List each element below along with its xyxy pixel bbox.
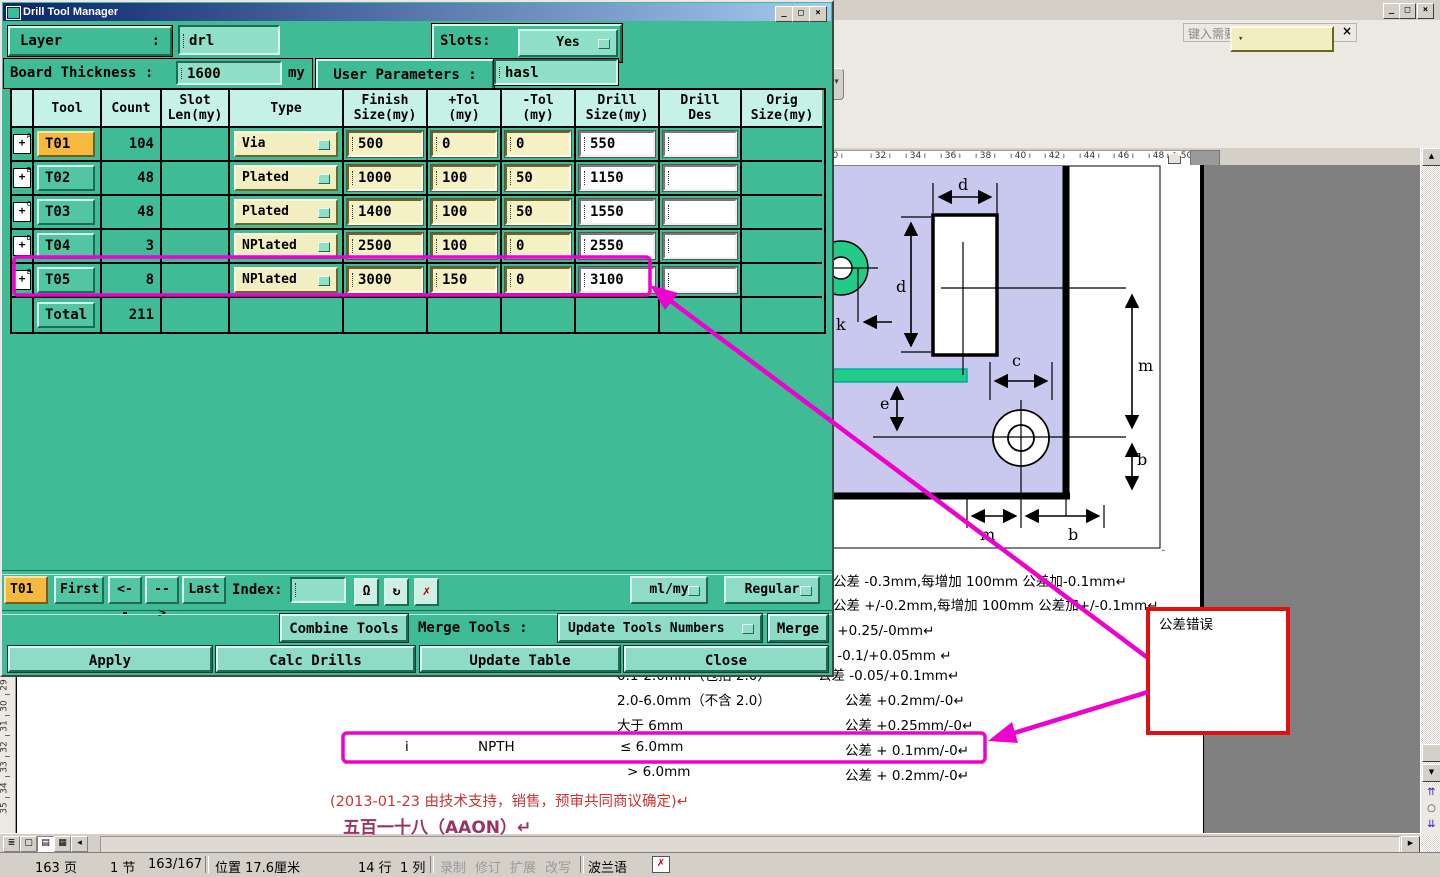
minus-tol-input[interactable]: 0: [505, 131, 571, 157]
first-button[interactable]: First: [54, 576, 104, 604]
status-column: 1 列: [400, 857, 425, 876]
plus-tol-input[interactable]: 0: [431, 131, 497, 157]
type-dropdown[interactable]: NPlated: [234, 267, 338, 293]
range-cell: > 6.0mm: [627, 764, 690, 780]
slots-dropdown[interactable]: Yes: [518, 29, 618, 57]
tolerance-cell: 公差 +0.2mm/-0↵: [845, 689, 965, 709]
merge-mode-dropdown[interactable]: Update Tools Numbers: [558, 614, 762, 642]
count-cell: 104: [102, 128, 162, 162]
add-page-icon[interactable]: +B: [13, 168, 31, 188]
thickness-label: Board Thickness :: [10, 65, 153, 81]
vruler-number: 31: [0, 720, 10, 731]
count-cell: 48: [102, 162, 162, 196]
vruler-number: 30: [0, 700, 10, 711]
web-layout-button[interactable]: ▢: [20, 836, 37, 852]
units-dropdown[interactable]: ml/my: [630, 576, 708, 604]
tolerance-cell: 公差 -0.05/+0.1mm↵: [818, 664, 959, 684]
finish-size-input[interactable]: 500: [347, 131, 423, 157]
total-label: Total: [37, 302, 95, 328]
vertical-ruler[interactable]: 29 30 31 32 33 34 35: [0, 672, 16, 833]
close-button[interactable]: Close: [624, 646, 828, 672]
prev-button[interactable]: <--: [108, 576, 142, 604]
refresh-icon-button[interactable]: ↻: [384, 578, 409, 606]
finish-size-input[interactable]: 2500: [347, 233, 423, 259]
drill-size-input[interactable]: 3100: [579, 267, 655, 293]
index-label: Index:: [232, 582, 283, 598]
units-value: ml/my: [649, 582, 688, 597]
npth-cell: NPTH: [478, 739, 515, 755]
scroll-left-button[interactable]: ◂: [71, 836, 88, 852]
vruler-number: 29: [0, 679, 10, 690]
chevron-down-icon[interactable]: ▾: [1230, 26, 1334, 52]
add-page-icon[interactable]: +D: [13, 236, 31, 256]
bulb-icon-button[interactable]: Ω: [354, 578, 379, 606]
drill-des-input[interactable]: [663, 233, 737, 259]
vertical-scrollbar[interactable]: ▲ ▼ ⇈ ○ ⇊: [1420, 147, 1440, 852]
vruler-number: 34: [0, 782, 10, 793]
drill-size-input[interactable]: 1150: [579, 165, 655, 191]
ruler-number: 42: [1044, 151, 1065, 161]
word-title-bar: _ □ ×: [830, 0, 1440, 21]
drill-size-input[interactable]: 2550: [579, 233, 655, 259]
user-params-label-box: User Parameters :: [316, 59, 494, 90]
drill-size-input[interactable]: 1550: [579, 199, 655, 225]
tolerance-cell: 公差 + 0.2mm/-0↵: [845, 764, 969, 784]
orig-size-cell: [742, 264, 822, 298]
dim-label-b-bottom: b: [1068, 525, 1078, 544]
dim-label-d-left: d: [896, 277, 906, 296]
dim-label-k: k: [836, 315, 846, 334]
table-header-row: Tool Count SlotLen(my) Type FinishSize(m…: [12, 90, 824, 128]
drill-des-input[interactable]: [663, 199, 737, 225]
layer-colon: :: [152, 33, 160, 49]
scrollbar-thumb[interactable]: [1422, 744, 1440, 762]
dialog-maximize-button[interactable]: □: [792, 6, 810, 22]
type-dropdown[interactable]: NPlated: [234, 233, 338, 259]
tool-button[interactable]: T04: [37, 233, 95, 259]
current-tool-chip: T01: [4, 576, 48, 604]
table-row: +B T02 48 Plated 1000 100 50 1150: [12, 162, 824, 196]
ruler-number: 30: [833, 151, 843, 161]
calc-drills-button[interactable]: Calc Drills: [216, 646, 415, 672]
tool-table: Tool Count SlotLen(my) Type FinishSize(m…: [10, 88, 826, 334]
type-dropdown[interactable]: Plated: [234, 165, 338, 191]
finish-size-input[interactable]: 1400: [347, 199, 423, 225]
count-cell: 8: [102, 264, 162, 298]
slot-len-cell: [162, 230, 230, 264]
index-input[interactable]: [290, 577, 346, 603]
layer-value: drl: [189, 33, 214, 49]
drill-des-input[interactable]: [663, 131, 737, 157]
count-cell: 48: [102, 196, 162, 230]
type-dropdown[interactable]: Plated: [234, 199, 338, 225]
tolerance-cell: 公差 +0.25mm/-0↵: [845, 714, 973, 734]
dropdown-indicator-icon: [318, 208, 330, 218]
ruler-number: 44: [1079, 151, 1100, 161]
dropdown-indicator-icon: [318, 174, 330, 184]
slots-label: Slots:: [440, 33, 491, 49]
slot-len-cell: [162, 196, 230, 230]
dialog-minimize-button[interactable]: _: [775, 6, 793, 22]
tolerance-line: 公差 -0.3mm,每增加 100mm 公差加-0.1mm↵: [833, 570, 1127, 590]
merge-mode-value: Update Tools Numbers: [568, 621, 725, 636]
ruler-number: 32: [870, 151, 891, 161]
plus-tol-input[interactable]: 150: [431, 267, 497, 293]
thickness-value: 1600: [187, 66, 221, 82]
ruler-number: 40: [1010, 151, 1031, 161]
drill-des-input[interactable]: [663, 267, 737, 293]
drill-size-input[interactable]: 550: [579, 131, 655, 157]
status-revise[interactable]: 修订: [475, 857, 501, 876]
dim-label-m-right: m: [1138, 356, 1153, 375]
dropdown-indicator-icon: [318, 140, 330, 150]
layer-input[interactable]: drl: [178, 25, 280, 55]
print-layout-button[interactable]: ▤: [37, 836, 54, 852]
dropdown-indicator-icon: [742, 624, 754, 634]
tool-button[interactable]: T02: [37, 165, 95, 191]
add-page-icon[interactable]: +A: [13, 134, 31, 154]
word-minimize-button[interactable]: _: [1383, 3, 1400, 19]
last-button[interactable]: Last: [182, 576, 226, 604]
outline-view-button[interactable]: ▦: [54, 836, 71, 852]
status-extend[interactable]: 扩展: [510, 857, 536, 876]
plus-tol-input[interactable]: 100: [431, 199, 497, 225]
pcb-dimension-diagram: d d k c m e b m b ↵: [820, 165, 1165, 555]
minus-tol-input[interactable]: 50: [505, 199, 571, 225]
orig-size-cell: [742, 230, 822, 264]
view-bar: ≣ ▢ ▤ ▦ ◂ ▶: [0, 833, 1420, 853]
scroll-down-button[interactable]: ▼: [1422, 764, 1440, 782]
orig-size-cell: [742, 128, 822, 162]
dialog-close-button[interactable]: ×: [809, 6, 827, 22]
vruler-number: 35: [0, 802, 10, 813]
combine-tools-button[interactable]: Combine Tools: [280, 614, 408, 642]
vruler-number: 33: [0, 761, 10, 772]
dropdown-indicator-icon: [598, 39, 610, 49]
slot-len-cell: [162, 162, 230, 196]
app-icon: [6, 6, 21, 20]
update-table-button[interactable]: Update Table: [420, 646, 620, 672]
horizontal-scrollbar[interactable]: [100, 836, 1400, 853]
horizontal-ruler[interactable]: 30 32 34 36 38 40 42 44 46 48 50: [833, 150, 1192, 166]
thickness-group: Board Thickness : 1600 my: [4, 59, 312, 88]
tool-button[interactable]: T01: [37, 131, 95, 157]
tolerance-cell: 公差 + 0.1mm/-0↵: [845, 739, 969, 759]
ruler-number: 38: [975, 151, 996, 161]
user-params-value: hasl: [505, 65, 539, 81]
tolerance-line: 公差 +/-0.2mm,每增加 100mm 公差加+/-0.1mm↵: [833, 594, 1159, 614]
add-page-icon[interactable]: +E: [13, 270, 31, 290]
plus-tol-input[interactable]: 100: [431, 165, 497, 191]
status-section: 1 节: [110, 857, 135, 876]
normal-view-button[interactable]: ≣: [3, 836, 20, 852]
thickness-input[interactable]: 1600: [176, 61, 282, 85]
scroll-up-button[interactable]: ▲: [1422, 148, 1440, 166]
user-params-label: User Parameters :: [333, 67, 476, 83]
total-row: Total 211: [12, 298, 824, 332]
layer-label-box: Layer :: [8, 26, 172, 56]
status-record[interactable]: 录制: [440, 857, 466, 876]
status-language[interactable]: 波兰语: [588, 857, 627, 876]
merge-button[interactable]: Merge: [768, 614, 828, 642]
add-page-icon[interactable]: +C: [13, 202, 31, 222]
table-row: +E T05 8 NPlated 3000 150 0 3100: [12, 264, 824, 298]
dim-label-d-top: d: [958, 175, 968, 194]
dialog-title-bar[interactable]: Drill Tool Manager _ □ ×: [3, 3, 831, 21]
plus-tol-input[interactable]: 100: [431, 233, 497, 259]
dim-label-c: c: [1012, 351, 1021, 370]
total-count: 211: [102, 298, 162, 332]
dialog-title: Drill Tool Manager: [23, 6, 118, 18]
status-overwrite[interactable]: 改写: [545, 857, 571, 876]
ruler-number: 48: [1148, 151, 1169, 161]
dim-label-e: e: [880, 394, 889, 413]
ruler-number: 46: [1113, 151, 1134, 161]
status-bar: 163 页 1 节 163/167 位置 17.6厘米 14 行 1 列 录制 …: [0, 852, 1440, 877]
close-icon[interactable]: ×: [1342, 24, 1352, 38]
slots-value: Yes: [556, 35, 579, 50]
status-position: 位置 17.6厘米: [215, 857, 300, 876]
help-search-box[interactable]: 键入需要帮助的问题 ▾ ×: [1183, 23, 1357, 42]
table-row: +A T01 104 Via 500 0 0 550: [12, 128, 824, 162]
dropdown-indicator-icon: [318, 276, 330, 286]
minus-tol-input[interactable]: 0: [505, 233, 571, 259]
browse-next-button[interactable]: ⇊: [1422, 817, 1440, 835]
word-restore-button[interactable]: □: [1399, 3, 1416, 19]
tool-button[interactable]: T05: [37, 267, 95, 293]
decision-note: (2013-01-23 由技术支持，销售，预审共同商议确定)↵: [330, 790, 689, 811]
slot-cutout: [933, 215, 997, 355]
finish-size-input[interactable]: 1000: [347, 165, 423, 191]
drill-tool-manager-dialog: Drill Tool Manager _ □ × Layer : drl Slo…: [0, 0, 834, 677]
spelling-status-icon[interactable]: ✗: [652, 856, 670, 873]
dim-label-b-right: b: [1137, 450, 1147, 469]
mode-value: Regular: [745, 582, 800, 597]
range-cell: ≤ 6.0mm: [620, 739, 683, 755]
finish-size-input[interactable]: 3000: [347, 267, 423, 293]
dropdown-indicator-icon: [318, 242, 330, 252]
user-params-input[interactable]: hasl: [494, 59, 618, 85]
minus-tol-input[interactable]: 0: [505, 267, 571, 293]
table-row: +C T03 48 Plated 1400 100 50 1550: [12, 196, 824, 230]
layer-label: Layer: [20, 33, 62, 49]
type-dropdown[interactable]: Via: [234, 131, 338, 157]
status-page: 163 页: [35, 857, 77, 876]
word-close-button[interactable]: ×: [1417, 3, 1434, 19]
minus-tol-input[interactable]: 50: [505, 165, 571, 191]
scroll-right-button[interactable]: ▶: [1401, 836, 1420, 853]
dropdown-indicator-icon: [688, 586, 700, 596]
thickness-unit: my: [288, 65, 305, 81]
table-row: +D T04 3 NPlated 2500 100 0 2550: [12, 230, 824, 264]
next-button[interactable]: -->: [145, 576, 179, 604]
ruler-margin-block: [1190, 150, 1220, 166]
range-cell: 2.0-6.0mm（不含 2.0）: [617, 689, 771, 709]
orig-size-cell: [742, 162, 822, 196]
range-cell: 大于 6mm: [617, 714, 683, 734]
apply-button[interactable]: Apply: [8, 646, 212, 672]
ruler-number: 36: [940, 151, 961, 161]
status-page-of: 163/167: [148, 857, 202, 872]
slot-len-cell: [162, 264, 230, 298]
tool-button[interactable]: T03: [37, 199, 95, 225]
status-line: 14 行: [358, 857, 392, 876]
slots-group: Slots: Yes: [432, 24, 622, 62]
vruler-number: 32: [0, 741, 10, 752]
dropdown-indicator-icon: [800, 586, 812, 596]
orig-size-cell: [742, 196, 822, 230]
ruler-number: 34: [905, 151, 926, 161]
delete-icon-button[interactable]: ✗: [414, 578, 439, 606]
copper-bar: [828, 369, 967, 382]
merge-tools-label: Merge Tools :: [418, 620, 528, 636]
slot-len-cell: [162, 128, 230, 162]
dim-label-m-bottom: m: [980, 525, 995, 544]
mode-dropdown[interactable]: Regular: [724, 576, 820, 604]
count-cell: 3: [102, 230, 162, 264]
pilcrow: ↵: [1160, 545, 1165, 555]
marker-cell: i: [405, 739, 409, 755]
section-heading: 五百一十八（AAON）↵: [343, 813, 531, 838]
drill-des-input[interactable]: [663, 165, 737, 191]
